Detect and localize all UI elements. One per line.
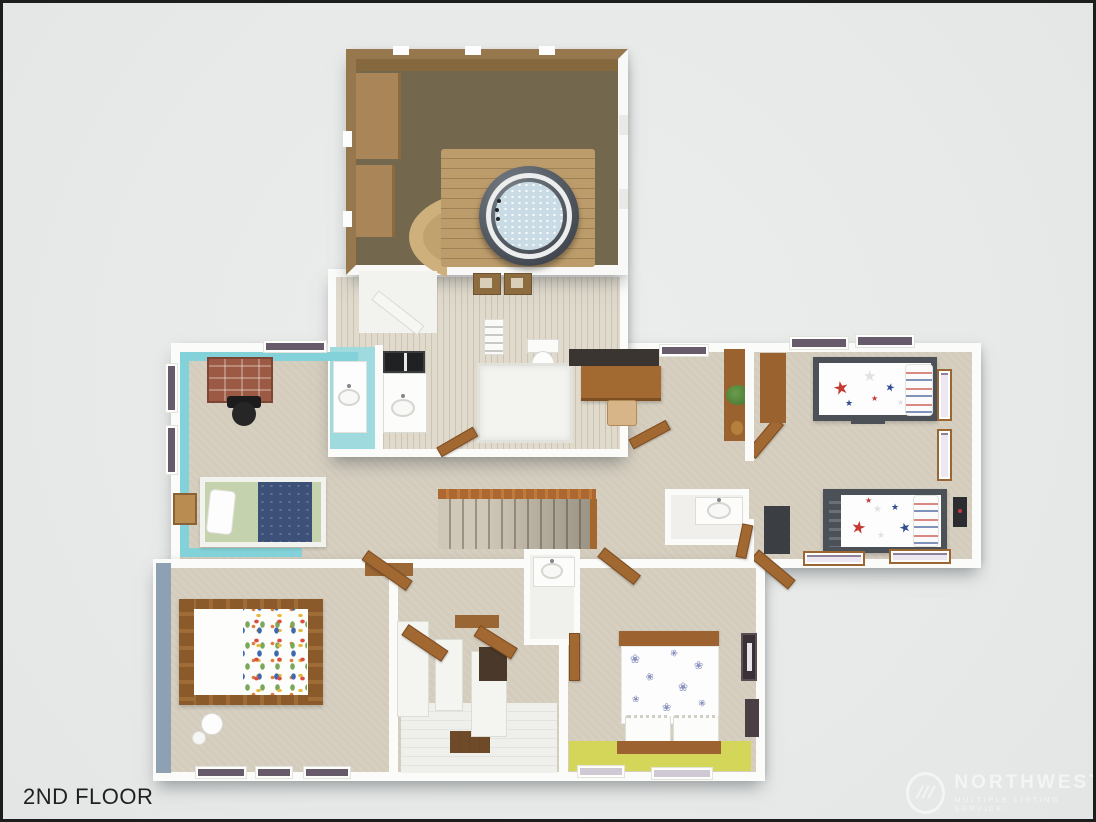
control-dot (496, 217, 500, 221)
window-glass (662, 347, 706, 354)
floor-lamp-base (192, 731, 206, 745)
window (803, 551, 865, 566)
floorplan-image: ★ ★ ★ ★ ★ ★ ★ ★ ★ ★ ★ ★ ❀ ❀ ❀ ❀ ❀ ❀ ❀ ❀ (0, 0, 1096, 822)
dark-counter (569, 349, 659, 366)
pillow (625, 715, 671, 743)
window (789, 336, 849, 350)
faucet (401, 394, 405, 398)
window (577, 765, 625, 778)
wall-art (745, 699, 759, 737)
built-in-bench (356, 165, 395, 237)
wall-cap (343, 211, 352, 227)
sink (391, 399, 415, 417)
control-dot (495, 208, 499, 212)
window-gap (619, 189, 628, 209)
flower-icon: ❀ (694, 661, 703, 672)
window-glass (941, 433, 948, 477)
pillow (905, 364, 933, 416)
window (937, 369, 952, 421)
control-dot (497, 199, 501, 203)
hot-tub-controls (495, 199, 503, 225)
window (255, 766, 293, 779)
pillow (206, 489, 236, 535)
flower-icon: ❀ (632, 695, 640, 704)
navy-blanket (258, 482, 312, 542)
floral-bed-footboard (617, 741, 721, 754)
window-glass (893, 553, 947, 560)
window (855, 334, 915, 348)
faucet (347, 384, 351, 388)
star-icon: ★ (884, 382, 896, 395)
nwmls-watermark: /// NORTHWEST MULTIPLE LISTING SERVICE. (906, 772, 1096, 814)
towel-ladder (484, 319, 504, 355)
wall-cap (393, 46, 409, 55)
office-nook-chair (607, 400, 637, 426)
cyan-wall-bottom (180, 548, 302, 557)
wall-cap (539, 46, 555, 55)
window-glass (580, 768, 622, 775)
log-rail (179, 599, 323, 609)
sink (707, 502, 731, 519)
wall-plaque (504, 273, 532, 295)
footboard-tab (851, 415, 885, 424)
nwmls-slashes-icon: /// (916, 783, 936, 803)
pillow (913, 495, 939, 547)
footboard-slats (829, 495, 841, 547)
window (195, 766, 247, 779)
wardrobe (760, 353, 786, 423)
sink (338, 389, 360, 406)
window (165, 425, 178, 475)
art-dot (958, 509, 962, 513)
window-glass (168, 428, 175, 472)
closet-shelf-top (455, 615, 499, 628)
window (651, 767, 713, 780)
wall-cap (343, 131, 352, 147)
divider-wall (375, 345, 383, 457)
window (263, 340, 327, 353)
closet-corner (359, 271, 437, 333)
interior-wall (745, 343, 754, 461)
nwmls-text: NORTHWEST MULTIPLE LISTING SERVICE. (954, 773, 1096, 813)
wall-art (741, 633, 757, 681)
floor-lamp (201, 713, 223, 735)
window (659, 344, 709, 357)
office-chair-seat (232, 402, 256, 426)
sink (541, 563, 563, 579)
vanity-mirrors (383, 351, 425, 373)
window (937, 429, 952, 481)
office-desk (581, 366, 661, 401)
accent-wall (156, 563, 171, 773)
window-glass (168, 366, 175, 410)
floral-duvet: ❀ ❀ ❀ ❀ ❀ ❀ ❀ ❀ (621, 646, 719, 724)
bedroom-door (569, 633, 580, 681)
stair-stringer (590, 499, 597, 549)
faucet (717, 498, 721, 502)
art-inner (747, 643, 752, 671)
window (165, 363, 178, 413)
nightstand (173, 493, 197, 525)
faucet (550, 559, 554, 563)
stair-banister (438, 489, 596, 499)
log-bed (179, 599, 323, 705)
window (303, 766, 351, 779)
star-icon: ★ (831, 378, 851, 399)
nwmls-logo-icon: /// (906, 772, 945, 814)
floor-label: 2ND FLOOR (23, 784, 153, 810)
window-glass (306, 769, 348, 776)
dark-wardrobe (764, 506, 790, 554)
window-glass (941, 373, 948, 417)
wall-art (953, 497, 967, 527)
window-glass (792, 339, 846, 347)
flower-icon: ❀ (678, 681, 688, 693)
star-icon: ★ (897, 399, 904, 407)
nwmls-tagline: MULTIPLE LISTING SERVICE. (954, 795, 1096, 813)
nwmls-name: NORTHWEST (954, 773, 1096, 793)
log-footboard (308, 599, 323, 705)
cyan-wall-left (180, 352, 189, 557)
window-glass (266, 343, 324, 350)
floral-bed-headboard (619, 631, 719, 646)
wood-beam (356, 59, 618, 71)
vase (731, 421, 743, 435)
star-icon: ★ (897, 520, 912, 536)
star-icon: ★ (871, 395, 878, 403)
flower-icon: ❀ (696, 698, 707, 710)
star-icon: ★ (850, 518, 868, 537)
star-icon: ★ (877, 531, 885, 540)
window (889, 549, 951, 564)
pillow (673, 715, 719, 743)
log-headboard (179, 599, 194, 705)
log-rail (179, 695, 323, 705)
window-glass (258, 769, 290, 776)
flower-icon: ❀ (645, 672, 656, 684)
walk-in-shower (477, 363, 573, 443)
mirror-frame-line (404, 353, 407, 371)
plaque-art (511, 278, 523, 288)
staircase (438, 499, 596, 549)
built-in-bench (356, 73, 401, 159)
flower-icon: ❀ (669, 648, 679, 659)
window-glass (198, 769, 244, 776)
flower-icon: ❀ (630, 653, 640, 665)
confetti-quilt (243, 609, 307, 695)
star-icon: ★ (865, 497, 872, 505)
window-glass (807, 555, 861, 562)
wall-cap (465, 46, 481, 55)
star-icon: ★ (863, 369, 876, 384)
star-icon: ★ (845, 399, 853, 408)
star-icon: ★ (891, 503, 899, 512)
window-glass (654, 770, 710, 777)
hot-tub-water (495, 182, 563, 250)
flower-icon: ❀ (662, 703, 671, 714)
plaque-art (480, 278, 492, 288)
window-glass (858, 337, 912, 345)
star-icon: ★ (873, 505, 882, 515)
window-gap (619, 115, 628, 135)
wall-plaque (473, 273, 501, 295)
